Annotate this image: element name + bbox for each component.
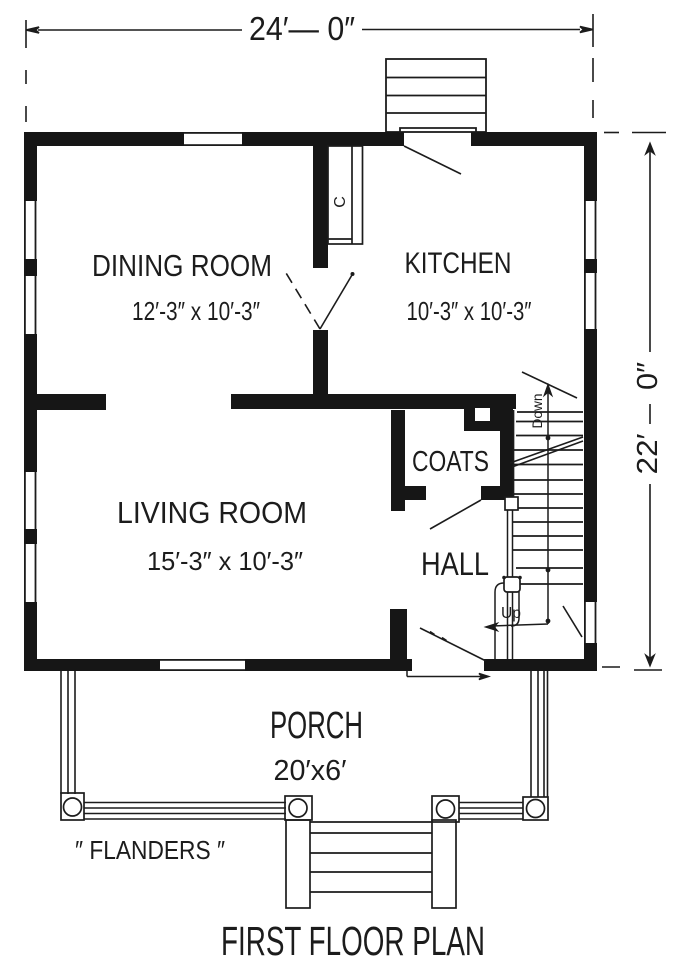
svg-text:LIVING ROOM: LIVING ROOM <box>117 495 307 530</box>
svg-text:22′: 22′ <box>632 434 664 475</box>
svg-text:COATS: COATS <box>412 446 489 478</box>
svg-text:15′-3″ x 10′-3″: 15′-3″ x 10′-3″ <box>147 546 303 576</box>
svg-text:10′-3″ x 10′-3″: 10′-3″ x 10′-3″ <box>407 296 532 326</box>
svg-text:KITCHEN: KITCHEN <box>405 247 512 280</box>
svg-text:″ FLANDERS ″: ″ FLANDERS ″ <box>75 835 225 865</box>
svg-text:FIRST FLOOR PLAN: FIRST FLOOR PLAN <box>221 918 485 964</box>
svg-text:12′-3″ x 10′-3″: 12′-3″ x 10′-3″ <box>132 296 260 326</box>
svg-text:DINING ROOM: DINING ROOM <box>92 248 272 283</box>
svg-text:20′x6′: 20′x6′ <box>274 755 347 787</box>
svg-text:HALL: HALL <box>421 546 489 582</box>
svg-text:0″: 0″ <box>632 362 664 390</box>
svg-text:C: C <box>332 196 349 208</box>
svg-text:Down: Down <box>529 394 545 429</box>
svg-text:24′— 0″: 24′— 0″ <box>249 10 355 47</box>
svg-text:Up: Up <box>501 605 521 622</box>
svg-text:PORCH: PORCH <box>270 705 363 747</box>
